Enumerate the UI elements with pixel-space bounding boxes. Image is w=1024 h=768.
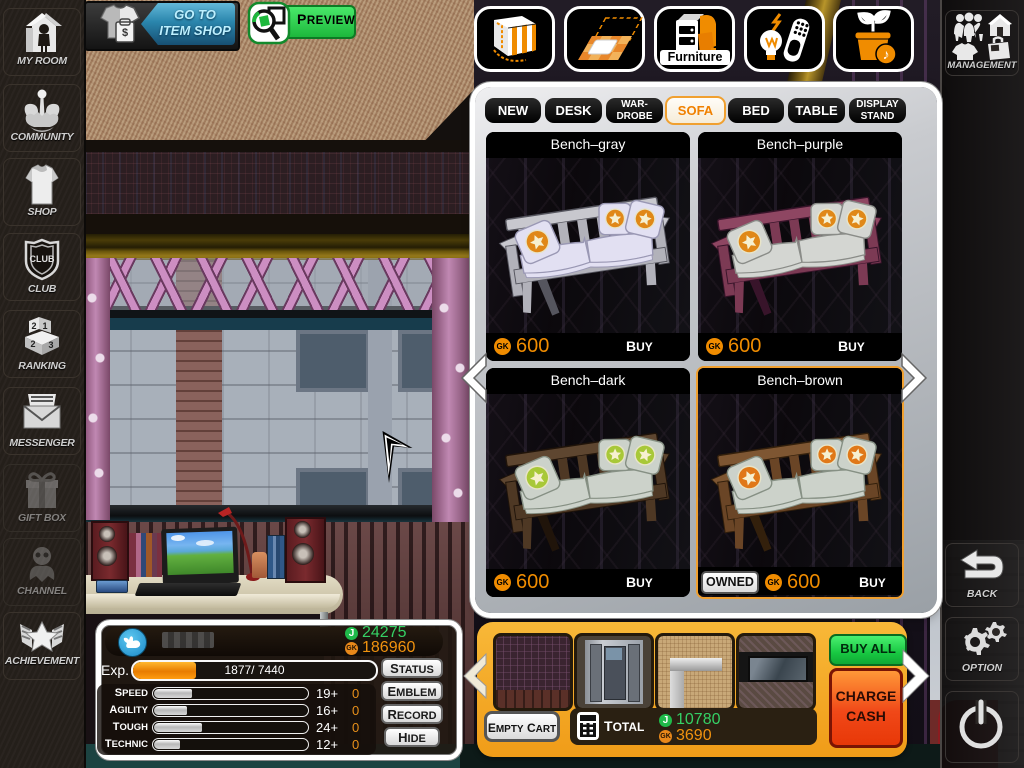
svg-text:1: 1 [42,321,47,331]
svg-text:3: 3 [48,340,53,350]
svg-text:2: 2 [31,321,36,331]
svg-text:♪: ♪ [883,46,890,62]
svg-text:$: $ [122,27,128,39]
svg-text:CLUB: CLUB [30,254,55,264]
svg-text:2: 2 [30,339,35,349]
